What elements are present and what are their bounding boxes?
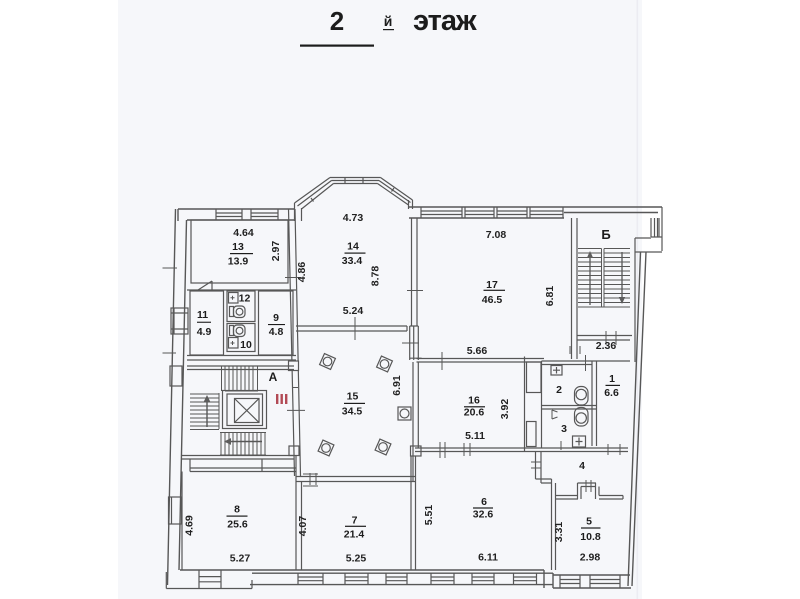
svg-text:15: 15 bbox=[347, 391, 359, 403]
svg-text:6.6: 6.6 bbox=[604, 387, 619, 399]
svg-text:34.5: 34.5 bbox=[342, 406, 363, 418]
svg-text:2.98: 2.98 bbox=[580, 552, 601, 564]
svg-text:9: 9 bbox=[273, 312, 279, 324]
svg-text:6.11: 6.11 bbox=[478, 552, 498, 564]
svg-text:11: 11 bbox=[197, 309, 208, 321]
svg-text:этаж: этаж bbox=[413, 5, 477, 37]
svg-text:1: 1 bbox=[609, 373, 615, 385]
svg-text:7: 7 bbox=[352, 515, 358, 527]
svg-text:12: 12 bbox=[239, 293, 251, 305]
svg-text:13.9: 13.9 bbox=[228, 256, 249, 268]
svg-text:3: 3 bbox=[561, 423, 567, 435]
svg-text:14: 14 bbox=[347, 241, 359, 253]
svg-text:10: 10 bbox=[240, 339, 252, 351]
svg-text:46.5: 46.5 bbox=[482, 294, 503, 306]
svg-text:8: 8 bbox=[234, 504, 240, 516]
svg-text:5.11: 5.11 bbox=[465, 430, 485, 442]
svg-text:5.27: 5.27 bbox=[230, 553, 251, 565]
svg-text:13: 13 bbox=[232, 241, 244, 253]
svg-text:3.31: 3.31 bbox=[553, 522, 565, 543]
svg-text:6.81: 6.81 bbox=[544, 286, 556, 307]
svg-text:й: й bbox=[384, 13, 393, 29]
svg-text:4.73: 4.73 bbox=[343, 212, 364, 224]
svg-text:21.4: 21.4 bbox=[344, 529, 365, 541]
svg-text:2: 2 bbox=[330, 6, 344, 36]
svg-text:5.24: 5.24 bbox=[343, 305, 364, 317]
svg-text:5.66: 5.66 bbox=[467, 345, 488, 357]
svg-text:4.9: 4.9 bbox=[197, 326, 212, 338]
svg-text:4.69: 4.69 bbox=[184, 515, 196, 536]
svg-text:А: А bbox=[269, 370, 278, 384]
svg-text:17: 17 bbox=[486, 279, 498, 291]
svg-text:2: 2 bbox=[556, 384, 562, 396]
svg-text:25.6: 25.6 bbox=[227, 519, 248, 531]
svg-text:7.08: 7.08 bbox=[486, 229, 507, 241]
svg-text:4.07: 4.07 bbox=[297, 516, 309, 537]
svg-text:10.8: 10.8 bbox=[580, 531, 601, 543]
svg-text:20.6: 20.6 bbox=[464, 407, 485, 419]
svg-text:2.36: 2.36 bbox=[596, 340, 617, 352]
svg-text:3.92: 3.92 bbox=[499, 399, 511, 420]
svg-text:6.91: 6.91 bbox=[391, 375, 403, 396]
svg-text:5.25: 5.25 bbox=[346, 553, 367, 565]
svg-text:32.6: 32.6 bbox=[473, 509, 494, 521]
svg-text:4.8: 4.8 bbox=[269, 326, 284, 338]
svg-text:5.51: 5.51 bbox=[423, 505, 435, 526]
svg-text:33.4: 33.4 bbox=[342, 255, 363, 267]
svg-text:4.64: 4.64 bbox=[233, 227, 254, 239]
svg-text:16: 16 bbox=[468, 395, 480, 407]
svg-text:2.97: 2.97 bbox=[270, 241, 282, 262]
svg-text:Б: Б bbox=[601, 227, 610, 242]
svg-text:8.78: 8.78 bbox=[370, 266, 382, 287]
svg-text:4: 4 bbox=[579, 460, 585, 472]
svg-text:4.86: 4.86 bbox=[296, 262, 308, 283]
svg-text:5: 5 bbox=[586, 516, 592, 528]
svg-text:6: 6 bbox=[481, 496, 487, 508]
